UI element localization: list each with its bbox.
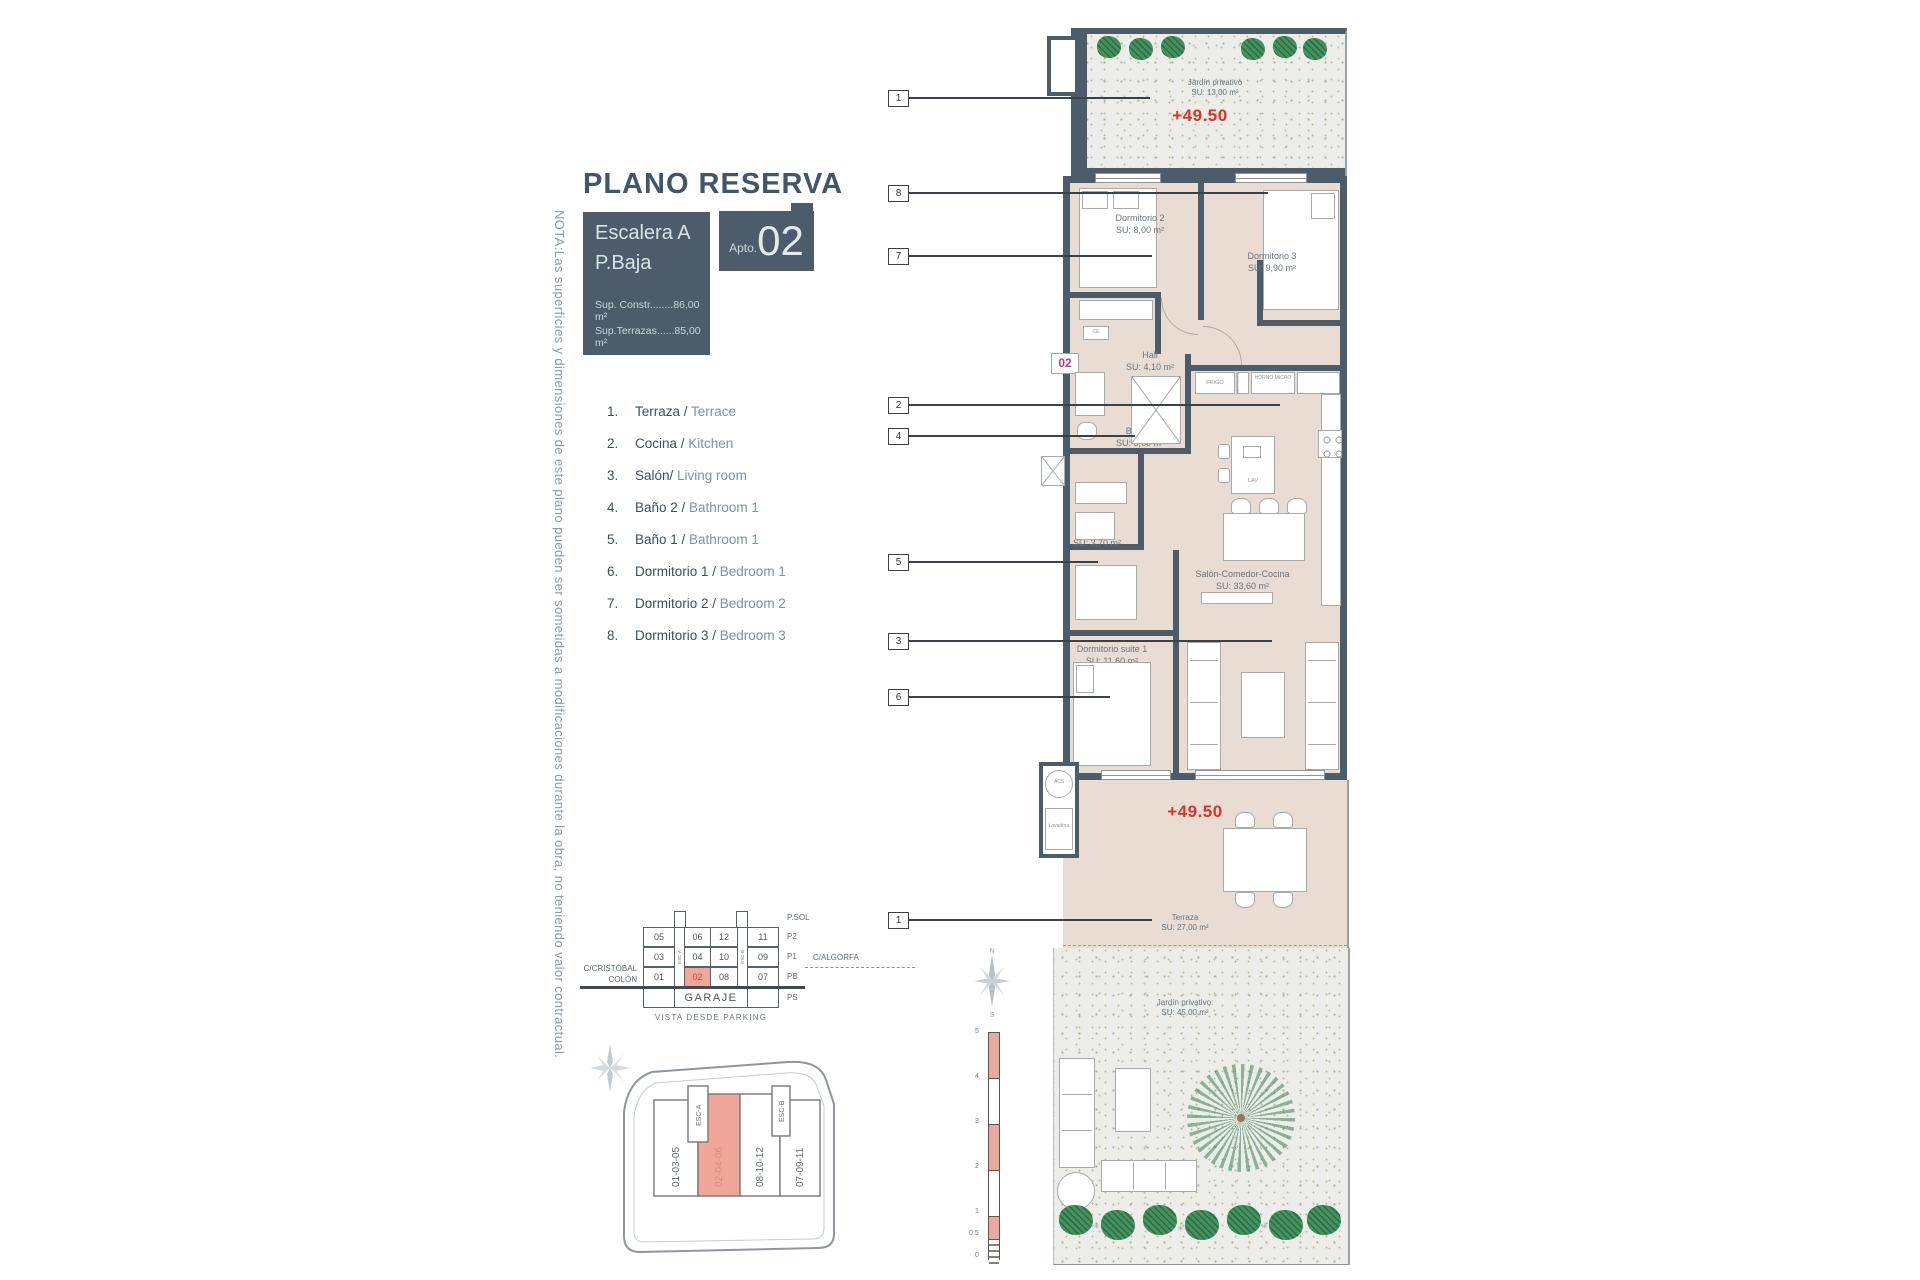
scale-seg xyxy=(989,1217,999,1240)
outdoor-sofa xyxy=(1059,1058,1095,1168)
apto-label: Apto. xyxy=(729,241,757,255)
washbasin xyxy=(1075,372,1105,416)
bush-icon xyxy=(1307,1205,1341,1235)
wall xyxy=(1198,183,1204,320)
acs-label: ACS xyxy=(1045,780,1073,786)
unit-badge: 02 xyxy=(1051,353,1079,374)
floor-plan-sheet: NOTA:Las superficies y dimensiones de es… xyxy=(0,0,1920,1280)
legend-item: 6.Dormitorio 1 / Bedroom 1 xyxy=(607,564,786,579)
sofa-cushion xyxy=(1190,744,1218,745)
pillow xyxy=(1082,191,1108,209)
sofa xyxy=(1187,642,1221,770)
window xyxy=(1095,173,1161,183)
room-label-dorm3: Dormitorio 3SU: 9,90 m² xyxy=(1217,251,1327,274)
bottle-rack-label: BOTELLERO xyxy=(1234,373,1252,393)
garaje-cell: GARAJE xyxy=(674,987,748,1008)
scale-tick-5: 5 xyxy=(975,1028,979,1035)
elevation-garden-top: +49.50 xyxy=(1135,106,1265,126)
sofa-cushion xyxy=(1133,1163,1134,1189)
garage-cell: 07 xyxy=(747,967,779,987)
island-label: LAV xyxy=(1231,478,1275,484)
sofa-cushion xyxy=(1308,702,1336,703)
wall xyxy=(1257,320,1347,326)
garage-cell: 01 xyxy=(643,967,675,987)
callout-line xyxy=(907,561,1098,563)
scale-bar xyxy=(988,1032,1000,1260)
planta-label: P.Baja xyxy=(595,252,710,275)
legend-item: 4.Baño 2 / Bathroom 1 xyxy=(607,500,786,515)
bush-icon xyxy=(1303,38,1327,60)
garage-row-label: P.SOL xyxy=(787,913,810,922)
callout-1-garden: 1 xyxy=(888,90,909,107)
sofa-cushion xyxy=(1308,660,1336,661)
street-right-line xyxy=(805,967,915,968)
toilet xyxy=(1077,422,1097,440)
terrace-table xyxy=(1223,828,1307,892)
garage-row-label: PS xyxy=(787,993,798,1002)
compass-rose: N S xyxy=(972,948,1012,1026)
callout-line xyxy=(907,696,1110,698)
room-label-dorm2: Dormitorio 2SU: 8,00 m² xyxy=(1090,213,1190,236)
room-legend: 1.Terraza / Terrace 2.Cocina / Kitchen 3… xyxy=(607,404,786,643)
wall xyxy=(1070,630,1175,636)
bush-icon xyxy=(1161,36,1185,58)
terrace-garden-divider xyxy=(1063,945,1347,946)
shaft-x xyxy=(1042,457,1064,485)
bush-icon xyxy=(1241,38,1265,60)
pillow xyxy=(1311,193,1335,219)
callout-2-kitchen: 2 xyxy=(888,397,909,414)
legend-item: 2.Cocina / Kitchen xyxy=(607,436,786,451)
wall xyxy=(1173,550,1179,775)
compass-star-icon xyxy=(972,955,1012,1007)
outdoor-side-table xyxy=(1115,1068,1151,1132)
scale-seg xyxy=(989,1079,999,1125)
apto-number: 02 xyxy=(757,217,804,265)
garden-entry-notch xyxy=(1047,36,1075,96)
oven-micro-label: HORNO MICRO xyxy=(1251,376,1295,382)
legend-item: 7.Dormitorio 2 / Bedroom 2 xyxy=(607,596,786,611)
room-label-terraza: TerrazaSU: 27,00 m² xyxy=(1130,913,1240,934)
sup-terrazas: Sup.Terrazas......85,00 m² xyxy=(595,325,710,349)
bush-icon xyxy=(1129,38,1153,60)
bush-icon xyxy=(1143,1205,1177,1235)
unit-info-card: Escalera A P.Baja Sup. Constr........86,… xyxy=(583,212,710,355)
flower-icon: ✳ xyxy=(1261,1222,1268,1231)
dining-chair xyxy=(1287,498,1307,514)
coffee-table xyxy=(1241,672,1285,738)
room-label-salon: Salón-Comedor-CocinaSU: 33,60 m² xyxy=(1180,569,1305,592)
site-plan: ESC-A ESC-B 01-03-05 02-04-06 08-10-12 0… xyxy=(588,1042,858,1270)
terrace-chair xyxy=(1235,812,1255,828)
scale-seg xyxy=(989,1125,999,1171)
window xyxy=(1101,770,1171,780)
callout-8-bedroom3: 8 xyxy=(888,185,909,202)
dining-table xyxy=(1223,513,1305,561)
callout-4-bathroom2: 4 xyxy=(888,428,909,445)
sofa-cushion xyxy=(1165,1163,1166,1189)
scale-tick-05: 0.5 xyxy=(969,1230,979,1237)
scale-tick-3: 3 xyxy=(975,1118,979,1125)
garage-cell: 12 xyxy=(710,927,738,947)
scale-tick-1: 1 xyxy=(975,1208,979,1215)
floor-plan: Jardín privativo SU: 13,00 m² +49.50 xyxy=(1035,20,1350,1270)
callout-7-bedroom2: 7 xyxy=(888,248,909,265)
wardrobe xyxy=(1075,565,1137,620)
garage-cell: 04 xyxy=(684,947,711,967)
street-right-label: C/ALGORFA xyxy=(813,953,859,962)
bush-icon xyxy=(1097,36,1121,58)
flower-icon: ✳ xyxy=(1093,1222,1100,1231)
fridge-label: FRIGO xyxy=(1195,380,1235,386)
bush-icon xyxy=(1269,1210,1303,1240)
legend-item: 1.Terraza / Terrace xyxy=(607,404,786,419)
pillow xyxy=(1076,665,1094,693)
garage-cell: 10 xyxy=(710,947,738,967)
callout-1-terrace: 1 xyxy=(888,912,909,929)
site-strip-2-label: 02-04-06 xyxy=(714,1147,725,1187)
site-strip-4-label: 07-09-11 xyxy=(795,1147,806,1187)
legend-item: 8.Dormitorio 3 / Bedroom 3 xyxy=(607,628,786,643)
garden-top-label: Jardín privativo SU: 13,00 m² xyxy=(1145,78,1285,99)
terrace-chair xyxy=(1273,812,1293,828)
street-left-label: C/CRISTÓBAL COLÓN xyxy=(555,963,637,985)
site-stair-b-label: ESC-B xyxy=(779,1100,786,1122)
compass-north-label: N xyxy=(972,948,1012,955)
counter xyxy=(1297,372,1340,394)
tv-stand xyxy=(1201,592,1273,604)
terrace-chair xyxy=(1273,892,1293,908)
legend-item: 5.Baño 1 / Bathroom 1 xyxy=(607,532,786,547)
garage-cell: 05 xyxy=(643,927,675,947)
page-title: PLANO RESERVA xyxy=(583,168,843,201)
bush-icon xyxy=(1273,36,1297,58)
callout-3-livingroom: 3 xyxy=(888,633,909,650)
scale-tick-0: 0 xyxy=(975,1252,979,1259)
scale-seg xyxy=(989,1033,999,1079)
dining-chair xyxy=(1259,498,1279,514)
site-stair-a-label: ESC-A xyxy=(696,1104,703,1126)
sup-constr: Sup. Constr........86,00 m² xyxy=(595,299,710,323)
tree-trunk xyxy=(1237,1114,1245,1122)
sofa xyxy=(1305,642,1339,770)
garden-bottom-label: Jardín privativo:SU: 45,00 m² xyxy=(1125,998,1245,1019)
garage-cell-empty xyxy=(643,987,675,1008)
escalera-label: Escalera A xyxy=(595,222,710,245)
garage-cell: 06 xyxy=(684,927,711,947)
shower xyxy=(1131,376,1181,444)
counter xyxy=(1321,394,1341,606)
sofa-cushion xyxy=(1308,744,1336,745)
garage-cell-empty xyxy=(747,987,779,1008)
apartment-number-card: Apto. 02 xyxy=(719,211,814,271)
callout-5-bathroom1: 5 xyxy=(888,554,909,571)
window xyxy=(1235,173,1307,183)
wall xyxy=(1191,365,1347,371)
callout-6-bedroom1: 6 xyxy=(888,689,909,706)
wall xyxy=(1155,292,1161,354)
window xyxy=(1195,770,1325,780)
room-label-hall: HallSU: 4,10 m² xyxy=(1105,350,1195,373)
callout-line xyxy=(907,435,1135,437)
sofa-cushion xyxy=(1062,1094,1092,1095)
callout-line xyxy=(907,97,1150,99)
scale-tick-4: 4 xyxy=(975,1073,979,1080)
wall xyxy=(1070,292,1160,298)
kitchen-island xyxy=(1231,436,1275,494)
garage-cell: 03 xyxy=(643,947,675,967)
apto-card-notch xyxy=(791,203,813,213)
garage-cell: 09 xyxy=(747,947,779,967)
cooktop xyxy=(1318,430,1342,458)
garage-cell: 08 xyxy=(710,967,738,987)
stool xyxy=(1218,468,1230,483)
sofa-cushion xyxy=(1190,702,1218,703)
washbasin xyxy=(1075,482,1127,504)
terrace-chair xyxy=(1235,892,1255,908)
closet xyxy=(1079,300,1153,320)
callout-line xyxy=(907,255,1152,257)
flower-icon: ✳ xyxy=(1177,1224,1184,1233)
shower xyxy=(1075,512,1115,540)
garage-diagram: 05 03 01 ESC-A 06 04 02 12 10 08 ESC-B 1… xyxy=(555,905,915,1035)
outdoor-sofa xyxy=(1101,1160,1197,1192)
island-sink xyxy=(1243,446,1261,458)
washing-machine-label: Lavadora xyxy=(1043,824,1075,830)
bush-icon xyxy=(1101,1210,1135,1240)
callout-line xyxy=(907,919,1152,921)
callout-line xyxy=(907,640,1272,642)
site-strip-3-label: 08-10-12 xyxy=(755,1147,766,1187)
garage-row-label: P2 xyxy=(787,932,797,941)
duct-shaft xyxy=(1041,456,1065,486)
garage-row-label: PB xyxy=(787,972,798,981)
garage-caption: VISTA DESDE PARKING xyxy=(643,1013,779,1022)
garage-row-label: P1 xyxy=(787,952,797,961)
scale-tick-2: 2 xyxy=(975,1163,979,1170)
sofa-cushion xyxy=(1190,660,1218,661)
site-strip-1-label: 01-03-05 xyxy=(671,1147,682,1187)
sofa-cushion xyxy=(1062,1130,1092,1131)
street-line xyxy=(580,986,805,989)
scale-seg xyxy=(989,1240,999,1264)
legend-item: 3.Salón/ Living room xyxy=(607,468,786,483)
garage-cell: 11 xyxy=(747,927,779,947)
pillow xyxy=(1113,191,1139,209)
shower-x xyxy=(1132,377,1180,443)
garage-cell-highlighted: 02 xyxy=(684,967,711,987)
ce-label: CE xyxy=(1083,330,1109,336)
compass-south-label: S xyxy=(972,1012,1012,1019)
callout-line xyxy=(907,192,1268,194)
stool xyxy=(1218,444,1230,459)
bush-icon xyxy=(1059,1205,1093,1235)
callout-line xyxy=(907,404,1280,406)
dining-chair xyxy=(1231,498,1251,514)
site-compass-icon xyxy=(590,1044,630,1092)
scale-seg xyxy=(989,1171,999,1217)
bush-icon xyxy=(1185,1210,1219,1240)
bush-icon xyxy=(1227,1205,1261,1235)
